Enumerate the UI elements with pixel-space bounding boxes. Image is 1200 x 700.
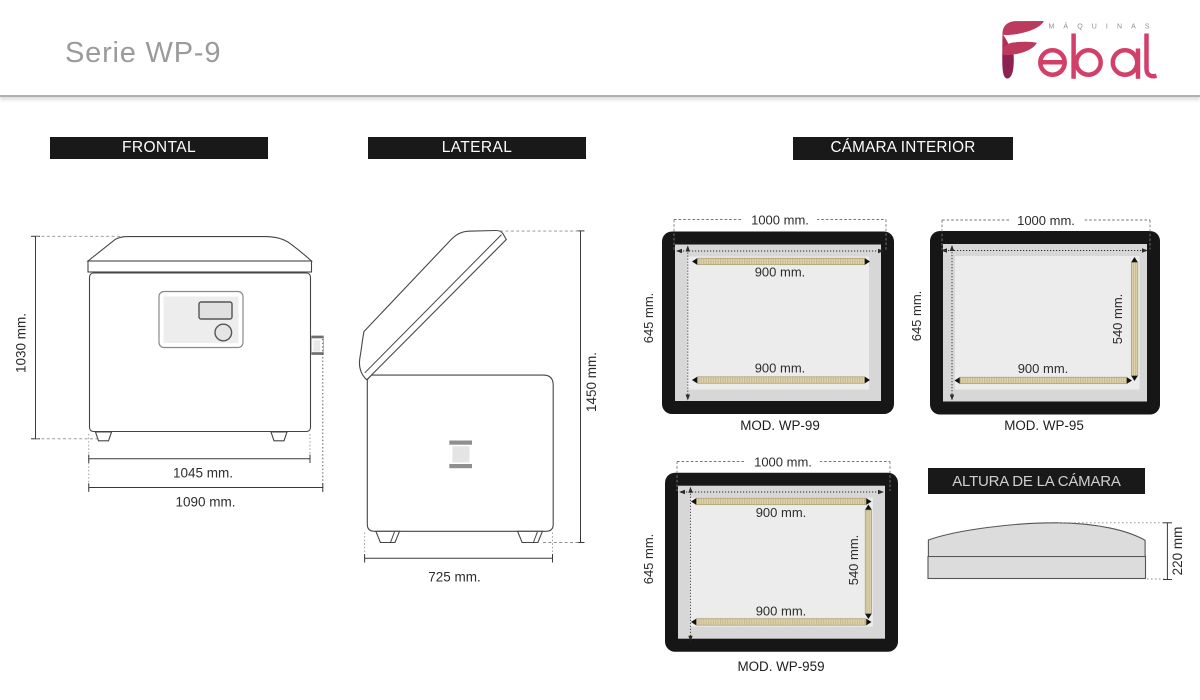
svg-text:540 mm.: 540 mm.	[846, 535, 861, 586]
svg-text:540 mm.: 540 mm.	[1110, 294, 1125, 345]
svg-text:645 mm.: 645 mm.	[641, 534, 656, 585]
svg-text:MOD. WP-95: MOD. WP-95	[1004, 418, 1084, 433]
svg-text:1000 mm.: 1000 mm.	[754, 455, 812, 470]
svg-text:220 mm: 220 mm	[1170, 527, 1185, 576]
svg-text:900 mm.: 900 mm.	[755, 265, 806, 280]
svg-text:MOD. WP-959: MOD. WP-959	[737, 659, 824, 674]
svg-text:1090 mm.: 1090 mm.	[175, 495, 235, 510]
svg-text:900 mm.: 900 mm.	[755, 361, 806, 376]
svg-text:900 mm.: 900 mm.	[756, 505, 807, 520]
svg-text:1000 mm.: 1000 mm.	[751, 213, 809, 228]
svg-text:1450 mm.: 1450 mm.	[584, 352, 599, 412]
svg-text:1045 mm.: 1045 mm.	[173, 466, 233, 481]
svg-text:900 mm.: 900 mm.	[756, 604, 807, 619]
svg-text:1000 mm.: 1000 mm.	[1017, 213, 1075, 228]
svg-text:645 mm.: 645 mm.	[909, 291, 924, 342]
svg-text:725 mm.: 725 mm.	[428, 570, 481, 585]
svg-text:645 mm.: 645 mm.	[641, 293, 656, 344]
svg-text:1030 mm.: 1030 mm.	[14, 313, 29, 373]
svg-text:MOD. WP-99: MOD. WP-99	[740, 418, 820, 433]
svg-text:900 mm.: 900 mm.	[1018, 361, 1069, 376]
